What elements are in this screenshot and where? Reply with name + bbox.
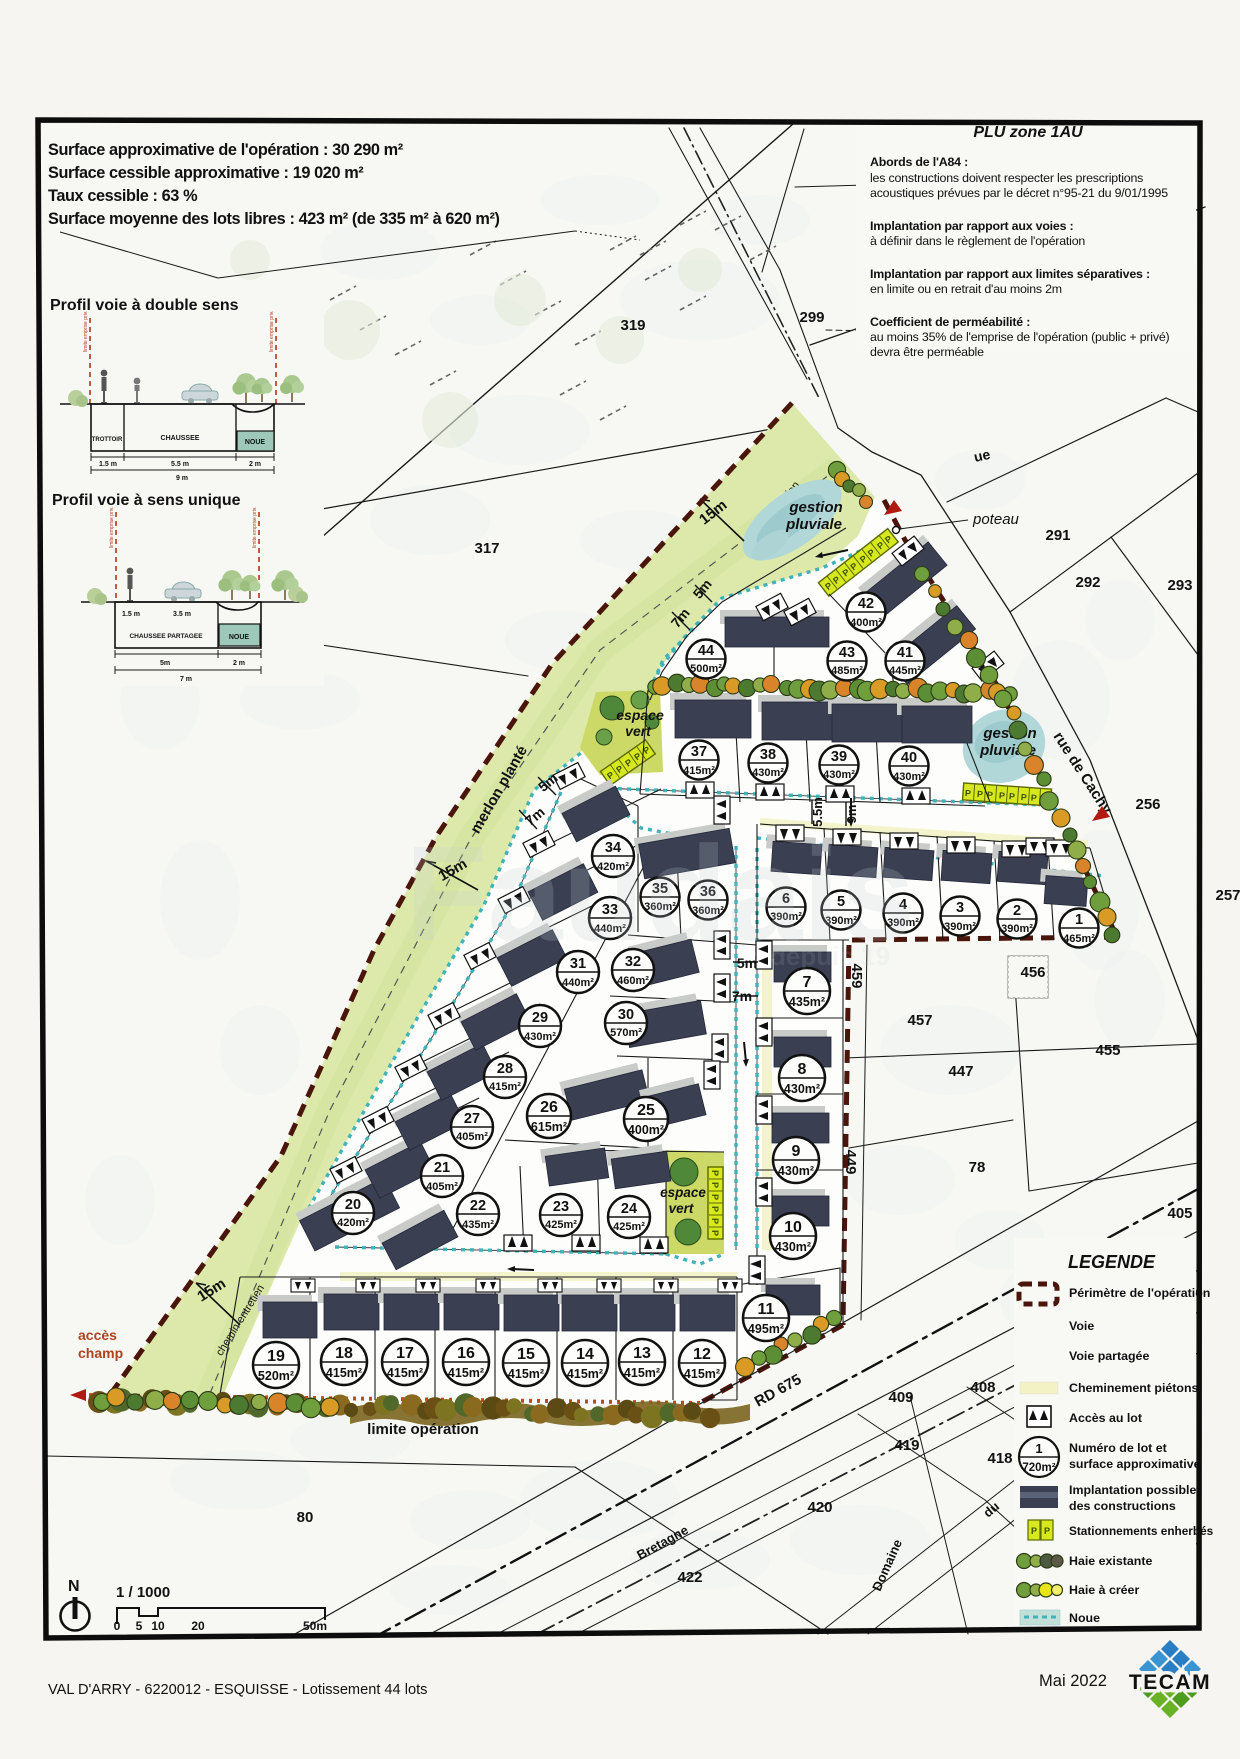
svg-text:limite emprise priv.: limite emprise priv. <box>109 507 115 548</box>
svg-text:26: 26 <box>540 1099 558 1116</box>
svg-text:256: 256 <box>1135 796 1160 813</box>
svg-text:NOUE: NOUE <box>245 439 266 446</box>
svg-text:41: 41 <box>897 645 913 661</box>
svg-text:20: 20 <box>345 1197 361 1213</box>
svg-text:292: 292 <box>1075 574 1100 591</box>
svg-text:14: 14 <box>576 1346 594 1363</box>
svg-text:37: 37 <box>691 744 707 760</box>
svg-text:CHAUSSEE: CHAUSSEE <box>161 435 200 442</box>
svg-text:des constructions: des constructions <box>1069 1499 1176 1513</box>
svg-text:1: 1 <box>1075 912 1083 928</box>
svg-text:1.5 m: 1.5 m <box>99 461 117 468</box>
svg-text:2 m: 2 m <box>249 461 261 468</box>
svg-text:P: P <box>999 790 1006 800</box>
svg-text:Implantation par rapport aux l: Implantation par rapport aux limites sép… <box>870 267 1150 281</box>
svg-text:24: 24 <box>621 1201 637 1217</box>
svg-text:465m²: 465m² <box>1063 933 1095 945</box>
svg-text:NOUE: NOUE <box>229 634 250 641</box>
svg-text:27: 27 <box>464 1111 480 1127</box>
svg-text:18: 18 <box>335 1345 353 1362</box>
svg-text:au moins 35% de l'emprise de l: au moins 35% de l'emprise de l'opération… <box>870 330 1170 344</box>
svg-text:15: 15 <box>517 1346 535 1363</box>
svg-text:N: N <box>68 1578 80 1595</box>
svg-text:39: 39 <box>831 749 847 765</box>
svg-text:42: 42 <box>858 596 874 612</box>
svg-text:Noue: Noue <box>1069 1611 1100 1625</box>
svg-text:VAL D'ARRY - 6220012 - ESQUISS: VAL D'ARRY - 6220012 - ESQUISSE - Lotiss… <box>48 1682 427 1698</box>
svg-text:435m²: 435m² <box>462 1219 494 1231</box>
svg-text:Numéro de lot et: Numéro de lot et <box>1069 1441 1167 1455</box>
svg-text:TECAM: TECAM <box>1129 1671 1211 1694</box>
svg-text:P: P <box>710 1182 720 1188</box>
svg-text:419: 419 <box>894 1437 919 1454</box>
svg-text:accès: accès <box>78 1327 117 1343</box>
svg-text:P: P <box>710 1206 720 1212</box>
svg-text:390m²: 390m² <box>1001 923 1033 935</box>
svg-text:à définir dans le règlement de: à définir dans le règlement de l'opérati… <box>870 234 1085 248</box>
svg-text:Haie à créer: Haie à créer <box>1069 1583 1139 1597</box>
svg-text:430m²: 430m² <box>778 1164 814 1178</box>
svg-text:43: 43 <box>839 645 855 661</box>
svg-text:291: 291 <box>1045 527 1070 544</box>
svg-text:1 / 1000: 1 / 1000 <box>116 1584 170 1601</box>
svg-text:430m²: 430m² <box>524 1031 556 1043</box>
svg-text:38: 38 <box>760 747 776 763</box>
svg-text:les constructions doivent resp: les constructions doivent respecter les … <box>870 171 1143 185</box>
svg-text:415m²: 415m² <box>567 1367 603 1381</box>
svg-text:720m²: 720m² <box>1022 1462 1055 1474</box>
svg-text:425m²: 425m² <box>545 1219 577 1231</box>
svg-text:44: 44 <box>698 643 714 659</box>
svg-text:devra être perméable: devra être perméable <box>870 345 984 359</box>
svg-text:10: 10 <box>151 1619 165 1633</box>
svg-text:430m²: 430m² <box>752 767 784 779</box>
svg-text:405: 405 <box>1167 1205 1192 1222</box>
svg-text:415m²: 415m² <box>683 765 715 777</box>
svg-text:P: P <box>1009 791 1016 801</box>
svg-text:19: 19 <box>267 1348 285 1365</box>
svg-text:415m²: 415m² <box>508 1367 544 1381</box>
svg-text:Surface cessible approximative: Surface cessible approximative : 19 020 … <box>48 164 364 182</box>
svg-text:acoustiques prévues par le déc: acoustiques prévues par le décret n°95-2… <box>870 186 1168 200</box>
svg-text:P: P <box>965 788 972 798</box>
svg-text:11: 11 <box>758 1301 775 1318</box>
svg-text:P: P <box>1044 1526 1050 1536</box>
svg-text:418: 418 <box>987 1450 1012 1467</box>
svg-text:20: 20 <box>191 1619 205 1633</box>
svg-text:Voie partagée: Voie partagée <box>1069 1349 1149 1363</box>
svg-text:gestion: gestion <box>788 499 842 516</box>
svg-text:400m²: 400m² <box>628 1123 664 1137</box>
svg-text:poteau: poteau <box>972 511 1020 528</box>
svg-text:430m²: 430m² <box>775 1240 811 1254</box>
svg-text:Profil voie à sens unique: Profil voie à sens unique <box>52 492 241 509</box>
svg-text:455: 455 <box>1095 1042 1120 1059</box>
svg-text:9 m: 9 m <box>176 475 188 482</box>
svg-text:13: 13 <box>633 1345 651 1362</box>
svg-text:615m²: 615m² <box>531 1120 567 1134</box>
svg-text:415m²: 415m² <box>326 1366 362 1380</box>
svg-text:3.5 m: 3.5 m <box>173 611 191 618</box>
svg-text:Implantation possible: Implantation possible <box>1069 1483 1196 1497</box>
svg-text:Cheminement piétons: Cheminement piétons <box>1069 1381 1199 1395</box>
svg-text:28: 28 <box>497 1061 513 1077</box>
svg-text:limite emprise priv.: limite emprise priv. <box>269 311 275 352</box>
svg-text:Stationnements enherbés: Stationnements enherbés <box>1069 1524 1214 1538</box>
svg-text:espace: espace <box>660 1185 706 1200</box>
svg-text:485m²: 485m² <box>831 665 863 677</box>
svg-text:limite emprise priv.: limite emprise priv. <box>83 311 89 352</box>
svg-text:P: P <box>977 789 984 799</box>
svg-text:409: 409 <box>888 1389 913 1406</box>
svg-text:Abords de l'A84 :: Abords de l'A84 : <box>870 155 968 169</box>
svg-text:50m: 50m <box>303 1619 327 1633</box>
svg-text:495m²: 495m² <box>748 1322 784 1336</box>
svg-text:Accès au lot: Accès au lot <box>1069 1411 1142 1425</box>
svg-text:420: 420 <box>807 1499 832 1516</box>
svg-text:500m²: 500m² <box>690 663 722 675</box>
svg-text:Voie: Voie <box>1069 1319 1094 1333</box>
svg-text:435m²: 435m² <box>789 995 825 1009</box>
svg-text:vert: vert <box>625 723 652 739</box>
svg-text:P: P <box>1021 792 1028 802</box>
svg-text:Mai 2022: Mai 2022 <box>1039 1672 1107 1690</box>
svg-text:Implantation par rapport aux v: Implantation par rapport aux voies : <box>870 219 1073 233</box>
svg-text:Surface moyenne des lots libre: Surface moyenne des lots libres : 423 m²… <box>48 210 500 228</box>
svg-text:460m²: 460m² <box>617 975 649 987</box>
svg-text:P: P <box>1031 793 1038 803</box>
svg-text:P: P <box>710 1194 720 1200</box>
svg-text:447: 447 <box>948 1063 973 1080</box>
svg-text:5: 5 <box>136 1619 143 1633</box>
svg-text:CHAUSSEE PARTAGEE: CHAUSSEE PARTAGEE <box>129 633 203 640</box>
svg-text:12: 12 <box>693 1346 711 1363</box>
svg-text:520m²: 520m² <box>258 1369 294 1383</box>
svg-text:1.5 m: 1.5 m <box>122 611 140 618</box>
svg-text:5.5 m: 5.5 m <box>171 461 189 468</box>
svg-text:10: 10 <box>784 1219 802 1236</box>
svg-text:257: 257 <box>1215 887 1240 904</box>
svg-text:0: 0 <box>114 1619 121 1633</box>
svg-text:2 m: 2 m <box>233 660 245 667</box>
svg-text:Périmètre de l'opération: Périmètre de l'opération <box>1069 1286 1210 1300</box>
svg-text:317: 317 <box>474 540 499 557</box>
svg-text:17: 17 <box>396 1345 414 1362</box>
svg-text:456: 456 <box>1020 964 1045 981</box>
svg-text:457: 457 <box>907 1012 932 1029</box>
svg-text:415m²: 415m² <box>684 1367 720 1381</box>
svg-text:405m²: 405m² <box>456 1131 488 1143</box>
svg-text:pluviale: pluviale <box>785 516 842 533</box>
svg-text:23: 23 <box>553 1199 569 1215</box>
svg-text:440m²: 440m² <box>562 977 594 989</box>
svg-text:430m²: 430m² <box>893 771 925 783</box>
svg-text:415m²: 415m² <box>624 1366 660 1380</box>
svg-text:415m²: 415m² <box>448 1366 484 1380</box>
svg-text:420m²: 420m² <box>337 1217 369 1229</box>
svg-text:430m²: 430m² <box>823 769 855 781</box>
svg-text:30: 30 <box>618 1007 634 1023</box>
svg-text:22: 22 <box>470 1198 486 1214</box>
svg-text:319: 319 <box>620 317 645 334</box>
svg-text:293: 293 <box>1167 577 1192 594</box>
svg-text:limite emprise priv.: limite emprise priv. <box>252 507 258 548</box>
svg-text:430m²: 430m² <box>784 1082 820 1096</box>
svg-text:Taux cessible : 63 %: Taux cessible : 63 % <box>48 187 198 205</box>
svg-text:29: 29 <box>532 1010 548 1026</box>
svg-text:8: 8 <box>798 1061 807 1078</box>
svg-text:390m²: 390m² <box>944 921 976 933</box>
svg-text:21: 21 <box>434 1160 450 1176</box>
svg-text:415m²: 415m² <box>387 1366 423 1380</box>
svg-text:40: 40 <box>901 750 917 766</box>
svg-text:champ: champ <box>78 1345 123 1361</box>
svg-text:espace: espace <box>616 707 664 723</box>
svg-text:limite opération: limite opération <box>367 1421 479 1438</box>
svg-text:408: 408 <box>970 1379 995 1396</box>
svg-text:405m²: 405m² <box>426 1181 458 1193</box>
svg-text:25: 25 <box>637 1102 655 1119</box>
svg-text:P: P <box>710 1170 720 1176</box>
svg-text:en limite ou en retrait d'au m: en limite ou en retrait d'au moins 2m <box>870 282 1062 296</box>
svg-text:7: 7 <box>803 974 812 991</box>
svg-text:LEGENDE: LEGENDE <box>1068 1252 1156 1272</box>
svg-text:P: P <box>710 1230 720 1236</box>
svg-text:Haie existante: Haie existante <box>1069 1554 1152 1568</box>
svg-text:P: P <box>1031 1526 1037 1536</box>
svg-text:5m: 5m <box>160 660 170 667</box>
svg-text:TROTTOIR: TROTTOIR <box>92 437 123 443</box>
svg-text:425m²: 425m² <box>613 1221 645 1233</box>
svg-text:415m²: 415m² <box>489 1081 521 1093</box>
svg-text:299: 299 <box>799 309 824 326</box>
svg-text:vert: vert <box>669 1201 694 1216</box>
svg-text:422: 422 <box>677 1569 702 1586</box>
svg-text:16: 16 <box>457 1345 475 1362</box>
svg-text:P: P <box>710 1218 720 1224</box>
svg-text:PLU zone 1AU: PLU zone 1AU <box>973 124 1083 141</box>
svg-text:400m²: 400m² <box>850 617 882 629</box>
svg-text:445m²: 445m² <box>889 665 921 677</box>
svg-text:Surface approximative de l'opé: Surface approximative de l'opération : 3… <box>48 141 404 159</box>
svg-text:surface approximative: surface approximative <box>1069 1457 1201 1471</box>
svg-text:80: 80 <box>297 1509 314 1526</box>
svg-text:9: 9 <box>792 1143 801 1160</box>
svg-text:Profil voie à double sens: Profil voie à double sens <box>50 297 239 314</box>
svg-text:570m²: 570m² <box>610 1027 642 1039</box>
svg-text:3: 3 <box>956 900 964 916</box>
svg-text:1: 1 <box>1035 1441 1042 1456</box>
svg-text:2: 2 <box>1013 903 1021 919</box>
svg-text:Coefficient de perméabilité :: Coefficient de perméabilité : <box>870 315 1030 329</box>
svg-text:78: 78 <box>969 1159 986 1176</box>
svg-text:7 m: 7 m <box>180 676 192 683</box>
svg-text:depuis 19: depuis 19 <box>770 941 890 971</box>
